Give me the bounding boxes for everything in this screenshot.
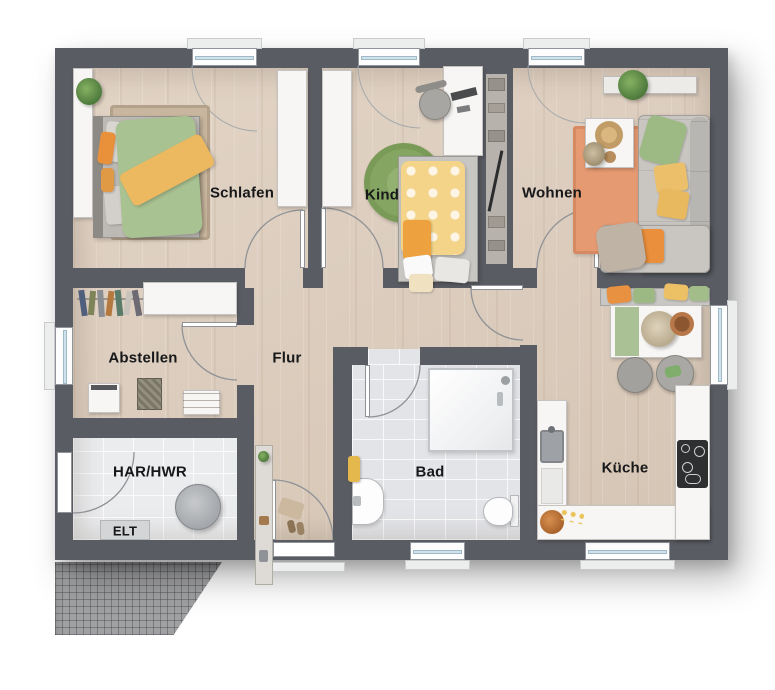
shoe-rack (183, 390, 220, 415)
shower-drain (497, 392, 503, 406)
label-bad: Bad (416, 464, 445, 481)
sideboard (143, 282, 237, 315)
shelf-deco (259, 550, 268, 562)
label-har-hwr: HAR/HWR (113, 464, 187, 481)
entrance-step (263, 562, 345, 572)
wall-abstellen-flur-b (237, 385, 254, 540)
window-sill (580, 560, 675, 570)
door-leaf-kueche (471, 285, 523, 290)
green-pillow (633, 288, 655, 303)
terrace-paving (55, 562, 222, 635)
floor-plan: Schlafen Kind Wohnen Abstellen Flur HAR/… (0, 0, 775, 690)
wall-abstellen-har (55, 418, 237, 438)
wardrobe (277, 70, 307, 207)
window-sill (405, 560, 470, 570)
yellow-pillow (656, 188, 690, 220)
vase (604, 151, 616, 163)
shelf-deco (259, 516, 269, 525)
books (488, 216, 505, 228)
plant (76, 78, 102, 105)
towel (348, 456, 360, 482)
label-wohnen: Wohnen (522, 185, 582, 202)
plant (618, 70, 648, 100)
copper-bowl (670, 312, 694, 336)
door-leaf-abstellen (182, 322, 237, 327)
label-kind: Kind (365, 187, 399, 204)
counter-inset (541, 468, 563, 504)
washing-machine-panel (91, 385, 117, 390)
wall-bad-north-a (333, 347, 368, 365)
dining-chair (617, 357, 653, 393)
window-abstellen (55, 327, 73, 385)
kitchen-sink (540, 430, 564, 463)
shower-head (501, 376, 510, 385)
beige-blanket (595, 221, 648, 274)
plant (258, 451, 269, 462)
books (488, 130, 505, 142)
burner (682, 462, 693, 473)
hall-shelf (255, 445, 273, 585)
window-bad (410, 542, 465, 560)
wall-abstellen-flur-a (237, 288, 254, 325)
window-wohnen (528, 48, 585, 66)
label-kueche: Küche (602, 460, 649, 477)
boiler (175, 484, 221, 530)
building: Schlafen Kind Wohnen Abstellen Flur HAR/… (55, 48, 728, 560)
door-leaf-schlafen (300, 210, 305, 268)
wall-bad-west (333, 347, 352, 540)
books (488, 103, 505, 113)
green-pillow (689, 286, 709, 301)
burner (694, 446, 705, 457)
door-leaf-kind (321, 208, 326, 268)
laundry-basket (137, 378, 162, 410)
window-kueche (585, 542, 670, 560)
door-leaf-bad (365, 365, 370, 417)
window-sill (44, 322, 55, 390)
window-schlafen (192, 48, 257, 66)
window-kind (358, 48, 420, 66)
side-entrance-door (57, 452, 72, 513)
burner (685, 474, 701, 484)
toilet-bowl (483, 497, 513, 526)
orange-pillow (101, 168, 114, 192)
books (488, 78, 505, 91)
burner (681, 444, 690, 453)
dried-plant (583, 142, 605, 166)
window-essbereich (710, 305, 728, 385)
wall-schlafen-kind (308, 68, 322, 268)
wall-bad-north-b (420, 347, 537, 365)
table-runner (615, 307, 639, 356)
orange-pillow (606, 285, 632, 304)
bed-pillow (409, 274, 433, 292)
wall-flur-kueche (520, 345, 537, 540)
bed-pillow (434, 256, 470, 283)
sink-faucet (353, 496, 361, 506)
wall-flur-north-b (303, 268, 323, 288)
label-schlafen: Schlafen (210, 185, 274, 202)
faucet (548, 426, 555, 433)
label-abstellen: Abstellen (108, 350, 177, 367)
desk-chair (419, 88, 451, 120)
yellow-pillow (663, 283, 688, 301)
window-sill (727, 300, 738, 390)
wardrobe (322, 70, 352, 207)
label-flur: Flur (272, 350, 301, 367)
books (488, 240, 505, 251)
label-elt: ELT (113, 524, 137, 539)
entrance-door (273, 542, 335, 557)
